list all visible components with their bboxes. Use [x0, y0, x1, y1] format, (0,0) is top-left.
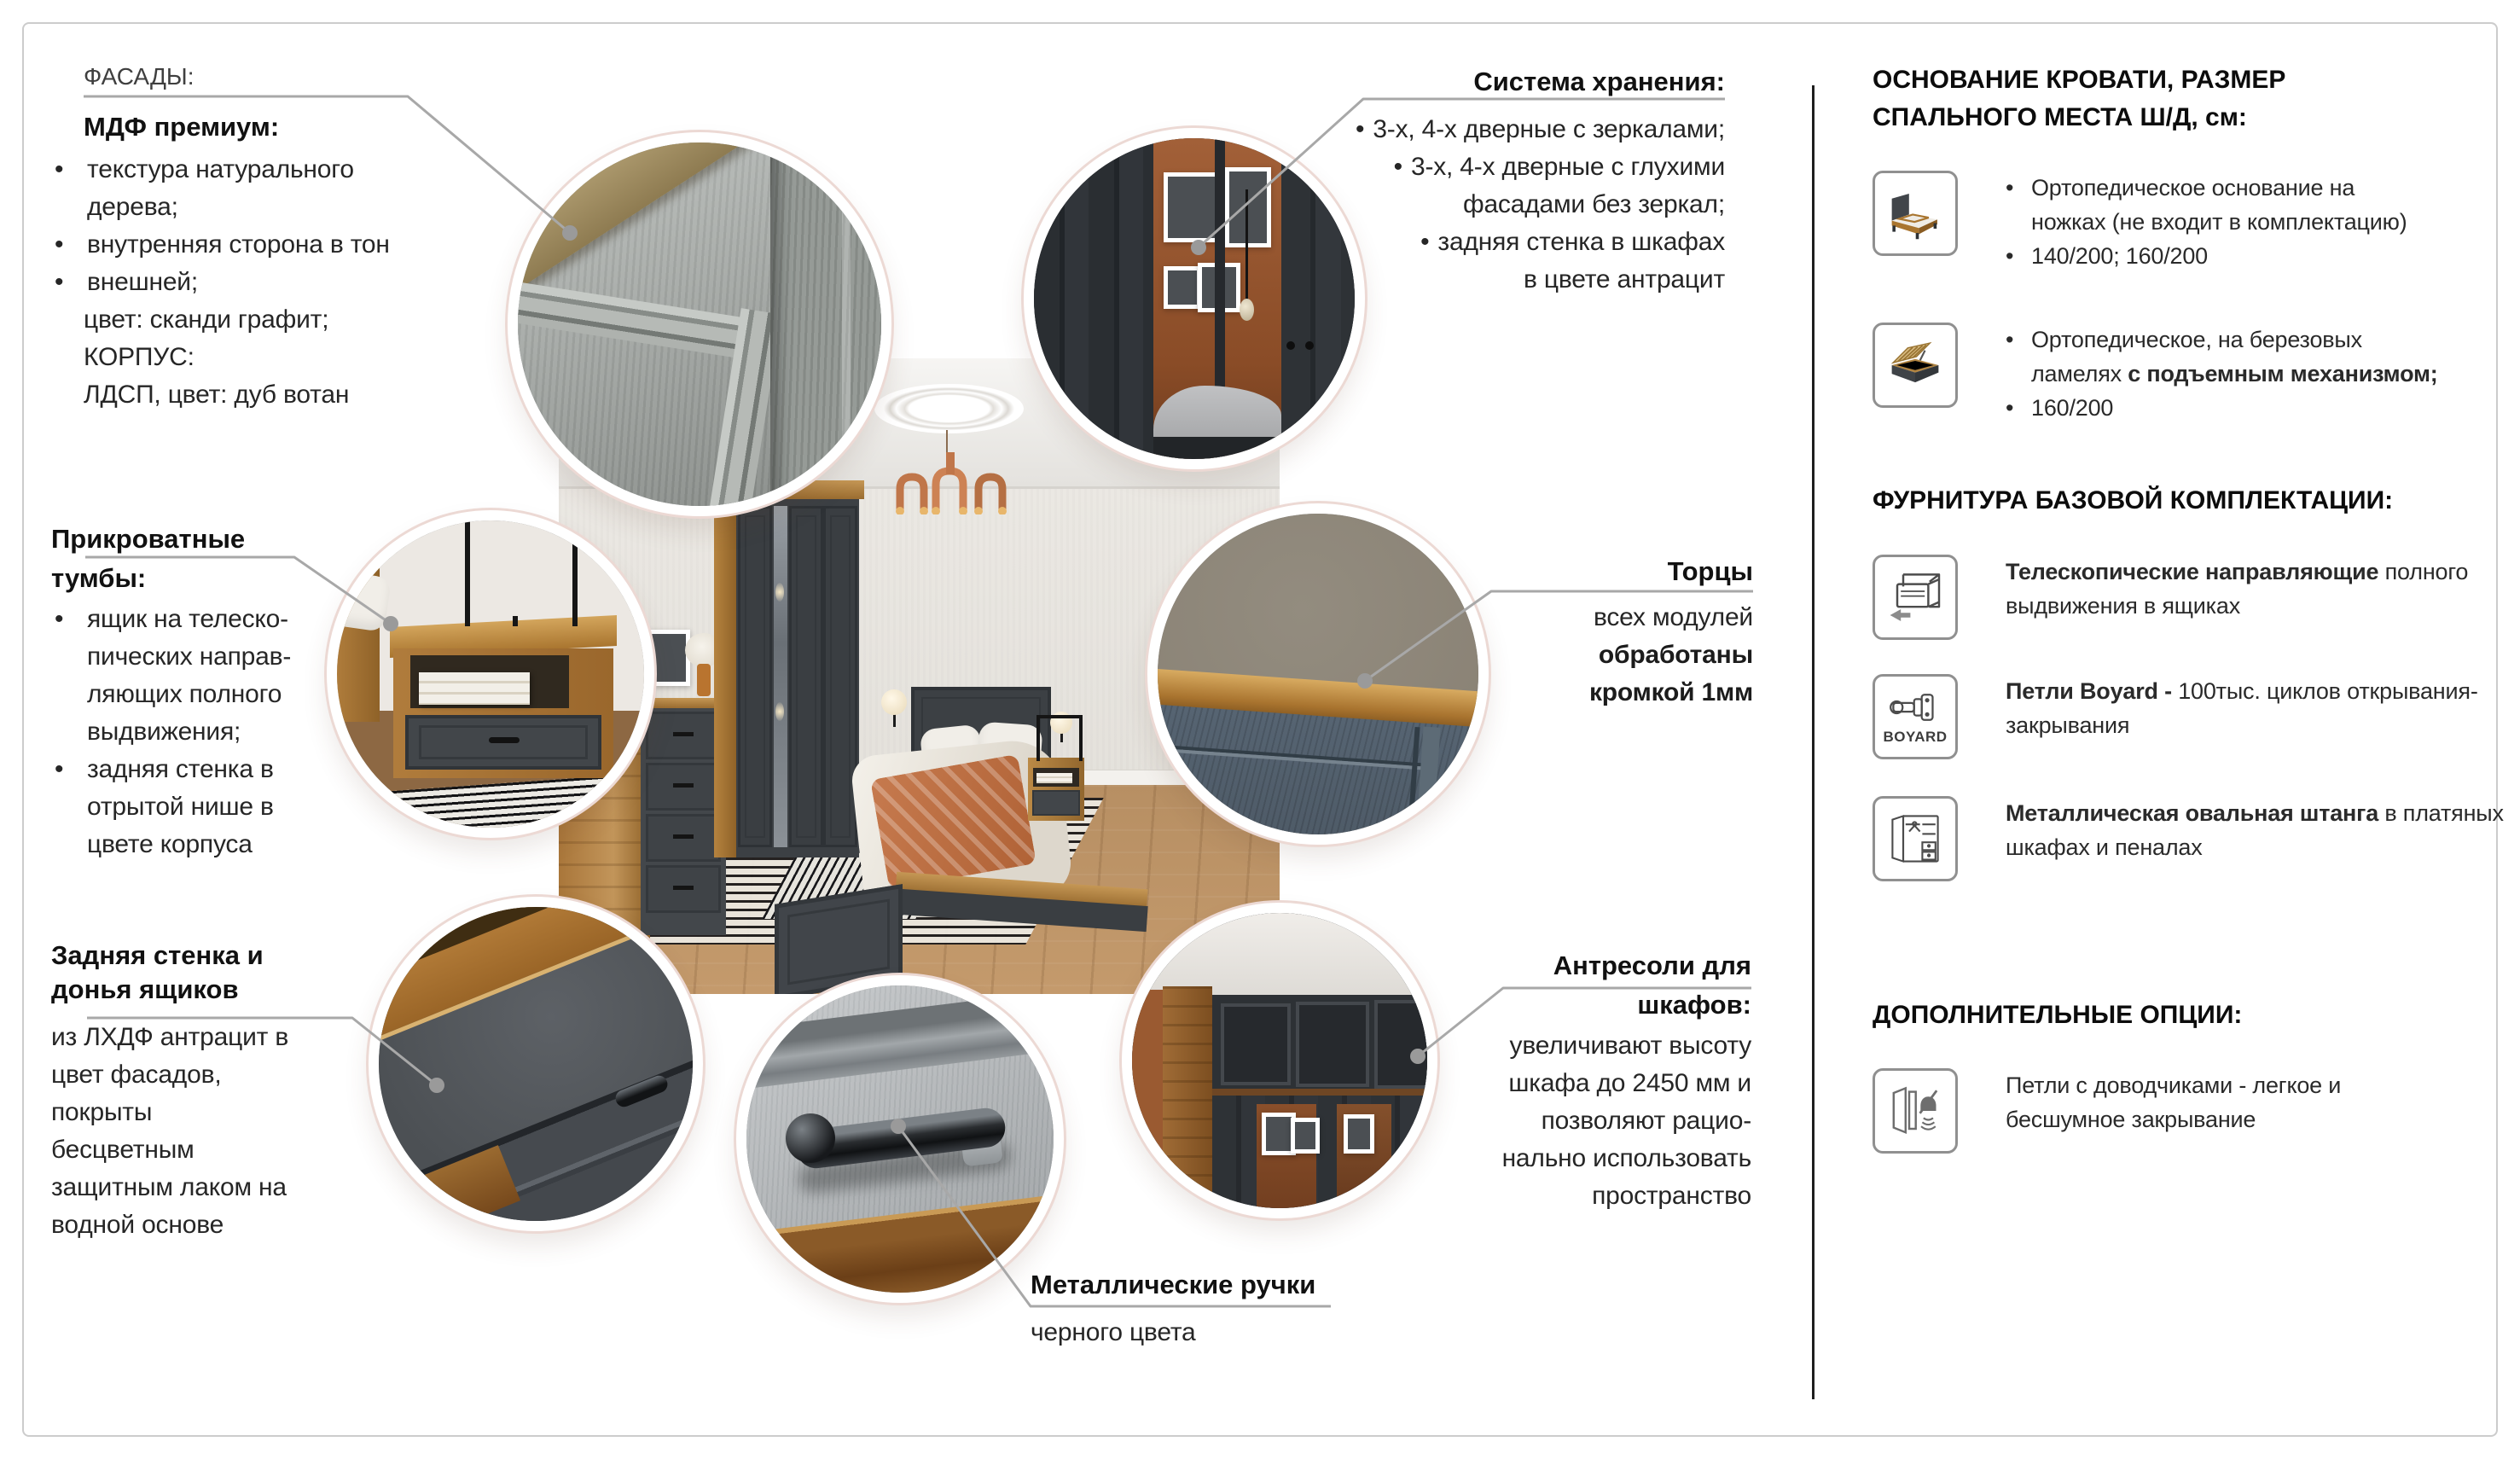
handles-body: черного цвета [1031, 1314, 1389, 1351]
hw1-text: Телескопические направляющие полного выд… [2006, 555, 2520, 623]
bed-base-item-lift: •Ортопедическое, на березовых ламелях с … [1873, 323, 2520, 425]
nightstand [1028, 758, 1084, 821]
callout-facades: ФАСАДЫ: МДФ премиум: •текстура натуральн… [51, 62, 478, 414]
edges-line: всех модулей [1455, 599, 1753, 636]
bed-base-heading: ОСНОВАНИЕ КРОВАТИ, РАЗМЕР СПАЛЬНОГО МЕСТ… [1873, 61, 2285, 137]
edges-title: Торцы [1455, 555, 1753, 589]
callout-handles: Металлические ручки черного цвета [1031, 1268, 1389, 1351]
drawer-slides-icon [1873, 555, 1958, 640]
boyard-hinge-icon: BOYARD [1873, 674, 1958, 759]
callout-back-wall: Задняя стенка и донья ящиков из ЛХДФ ант… [51, 939, 350, 1244]
hw2-text: Петли Boyard - 100тыс. циклов открывания… [2006, 674, 2520, 742]
storage-bullet: •3-х, 4-х дверные с зеркалами; [1280, 111, 1725, 148]
wardrobe [714, 480, 859, 857]
callout-nightstands: Прикроватные тумбы: •ящик на телеско- пи… [51, 522, 316, 863]
facades-bullet: •текстура натурального дерева; [51, 151, 478, 226]
options-heading: ДОПОЛНИТЕЛЬНЫЕ ОПЦИИ: [1873, 997, 2242, 1034]
sidebar-divider [1812, 85, 1815, 1399]
copper-chandelier [883, 450, 1019, 514]
callout-edges: Торцы всех модулей обработаны кромкой 1м… [1455, 555, 1753, 712]
facades-tail: цвет: сканди графит; КОРПУС: ЛДСП, цвет:… [51, 301, 478, 414]
bed2-text: •Ортопедическое, на березовых ламелях с … [2006, 323, 2520, 391]
hw3-text: Металлическая овальная штанга в платяных… [2006, 796, 2520, 864]
hardware-item-rail: Металлическая овальная штанга в платяных… [1873, 796, 2520, 881]
facades-bullet: •внутренняя сторона в тон [51, 226, 478, 264]
bed-lift-icon [1873, 323, 1958, 408]
photo-circle-facade [508, 132, 891, 516]
infographic-canvas: ФАСАДЫ: МДФ премиум: •текстура натуральн… [0, 0, 2520, 1459]
back-wall-title: Задняя стенка и донья ящиков [51, 939, 350, 1007]
callout-antresoli: Антресоли для шкафов: увеличивают высоту… [1453, 949, 1751, 1215]
hardware-item-hinges: BOYARD Петли Boyard - 100тыс. циклов отк… [1873, 674, 2520, 759]
storage-bullet: •3-х, 4-х дверные с глухими фасадами без… [1280, 148, 1725, 224]
wire-lamp [1036, 715, 1083, 761]
bed2-sizes: •160/200 [2006, 391, 2520, 425]
chest-of-drawers [641, 698, 726, 935]
antresoli-title-2: шкафов: [1453, 988, 1751, 1022]
storage-bullet: •задняя стенка в шкафах в цвете антрацит [1280, 224, 1725, 299]
photo-circle-drawer [369, 897, 703, 1231]
nightstands-title-1: Прикроватные [51, 522, 316, 556]
nightstands-bullet: •задняя стенка в отрытой нише в цвете ко… [51, 751, 316, 863]
bed-on-legs-icon [1873, 171, 1958, 256]
bed1-text: •Ортопедическое основание на ножках (не … [2006, 171, 2520, 239]
handles-title: Металлические ручки [1031, 1268, 1389, 1302]
vase [697, 664, 711, 696]
callout-storage-system: Система хранения: •3-х, 4-х дверные с зе… [1280, 65, 1725, 299]
facades-label: ФАСАДЫ: [51, 62, 478, 91]
edges-lines-bold: обработаны кромкой 1мм [1455, 636, 1753, 712]
nightstands-bullet: •ящик на телеско- пических направ- ляющи… [51, 601, 316, 751]
soft-close-hinge-icon [1873, 1068, 1958, 1154]
facades-bullet: •внешней; [51, 264, 478, 301]
antresoli-title-1: Антресоли для [1453, 949, 1751, 983]
antresoli-body: увеличивают высоту шкафа до 2450 мм и по… [1453, 1027, 1751, 1215]
boyard-logo: BOYARD [1883, 729, 1947, 746]
storage-title: Система хранения: [1280, 65, 1725, 99]
hardware-heading: ФУРНИТУРА БАЗОВОЙ КОМПЛЕКТАЦИИ: [1873, 482, 2393, 520]
sconce-shade [881, 689, 907, 715]
facades-subtitle: МДФ премиум: [51, 110, 478, 144]
opt1-text: Петли с доводчиками - легкое и бесшумное… [2006, 1068, 2520, 1136]
bed-base-item-legs: •Ортопедическое основание на ножках (не … [1873, 171, 2520, 273]
photo-circle-edge [1147, 503, 1489, 845]
bed1-sizes: •140/200; 160/200 [2006, 239, 2520, 273]
hardware-item-slides: Телескопические направляющие полного выд… [1873, 555, 2520, 640]
back-wall-body: из ЛХДФ антрацит в цвет фасадов, покрыты… [51, 1019, 350, 1244]
photo-circle-handle [736, 975, 1064, 1303]
options-item-softclose: Петли с доводчиками - легкое и бесшумное… [1873, 1068, 2520, 1154]
ceiling-medallion [874, 384, 1024, 433]
photo-circle-nightstand [327, 510, 654, 838]
photo-circle-antresoli [1122, 903, 1437, 1218]
nightstands-title-2: тумбы: [51, 561, 316, 596]
wardrobe-rail-icon [1873, 796, 1958, 881]
